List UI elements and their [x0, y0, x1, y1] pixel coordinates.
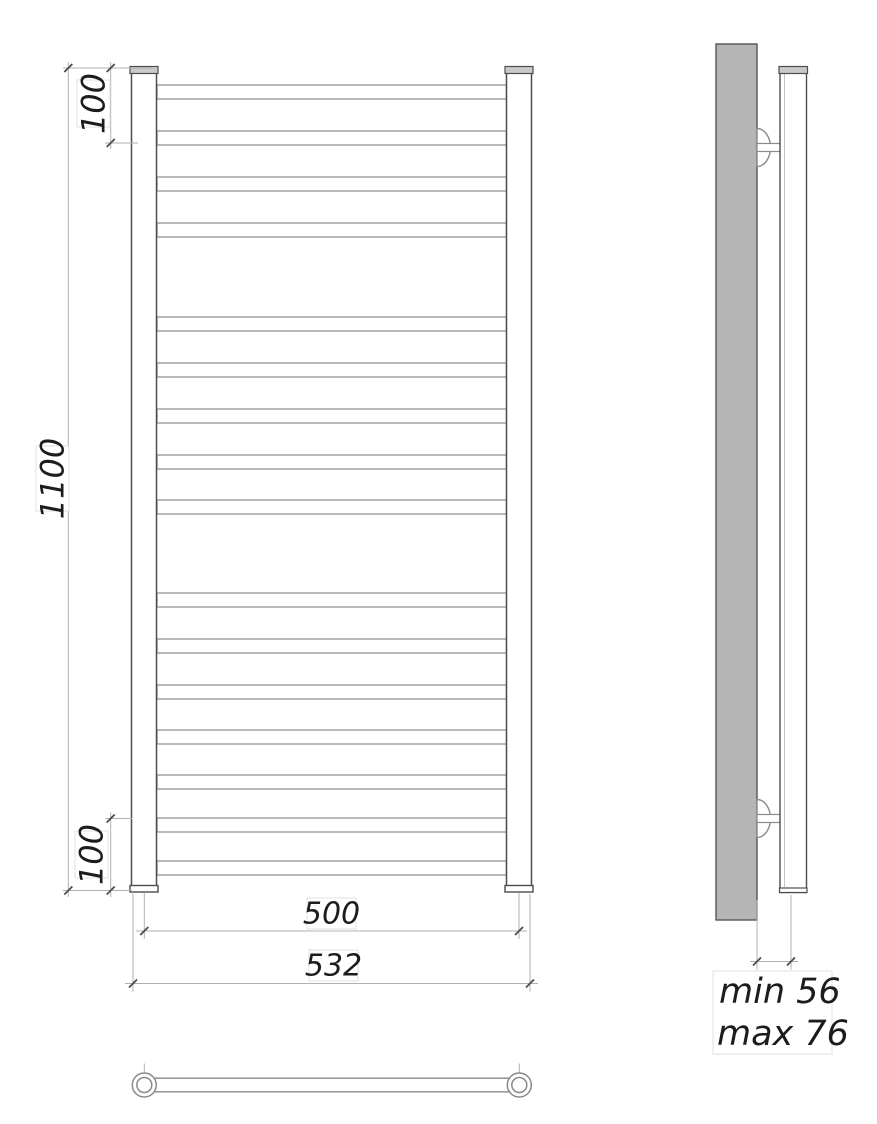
dim-label-depth-max: max 76 — [717, 1014, 849, 1054]
dim-label-axis-width: 500 — [303, 897, 360, 932]
side-post — [780, 68, 807, 893]
right-post-foot — [505, 886, 533, 893]
side-view — [716, 44, 808, 920]
front-view — [130, 67, 533, 893]
right-post-section-inner — [512, 1078, 527, 1093]
side-post-bottom-cap — [780, 888, 808, 893]
bracket-stem-bottom — [757, 815, 781, 823]
left-post — [132, 67, 157, 890]
dim-label-depth-min: min 56 — [719, 972, 841, 1012]
drawing-page: 100 1100 100 500 532 min 56 max 76 — [0, 0, 877, 1124]
towel-bars — [157, 85, 507, 875]
front-dimensions: 100 1100 100 500 532 — [34, 62, 539, 992]
towel-bar — [157, 730, 507, 744]
bottom-view — [132, 1064, 531, 1098]
towel-bar — [157, 317, 507, 331]
towel-bar — [157, 500, 507, 514]
towel-bar — [157, 223, 507, 237]
towel-bar — [157, 363, 507, 377]
towel-bar — [157, 177, 507, 191]
wall-panel — [716, 44, 757, 920]
side-post-top-cap — [779, 67, 808, 74]
left-post-section-inner — [137, 1078, 152, 1093]
right-post-top-cap — [505, 67, 533, 74]
towel-bar — [157, 455, 507, 469]
dim-label-overall-height: 1100 — [34, 438, 72, 519]
towel-bar — [157, 131, 507, 145]
towel-bar — [157, 85, 507, 99]
towel-bar — [157, 593, 507, 607]
technical-drawing-canvas: 100 1100 100 500 532 min 56 max 76 — [0, 0, 877, 1124]
towel-bar — [157, 775, 507, 789]
towel-bar — [157, 685, 507, 699]
towel-bar — [157, 861, 507, 875]
dim-label-top-span: 100 — [75, 73, 113, 134]
towel-bar — [157, 639, 507, 653]
left-post-foot — [130, 886, 158, 893]
dim-label-overall-width: 532 — [305, 949, 362, 984]
towel-bar — [157, 409, 507, 423]
bracket-stem-top — [757, 144, 781, 152]
right-post — [507, 67, 532, 890]
towel-bar — [157, 818, 507, 832]
dim-label-bottom-span: 100 — [73, 824, 111, 885]
